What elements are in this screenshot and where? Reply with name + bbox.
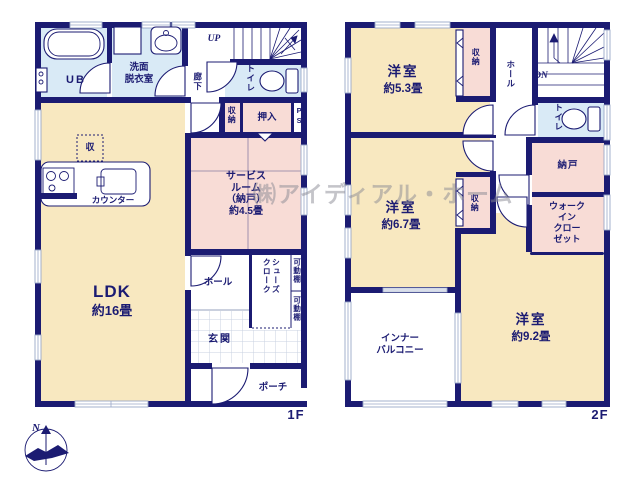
f2-toilet-label: トイレ [553,103,563,132]
f1-genkan-label: 玄関 [208,334,232,347]
compass-bird-icon [25,445,69,461]
f1-hall-label: ホール [204,277,233,289]
f1-toilet-label: トイレ [245,64,255,93]
f1-closet-label: 収納 [227,106,236,124]
f1-shelf-label-2: 可動棚 [292,296,301,322]
f1-room-ldk [41,103,185,401]
floor-plan-page: { "watermark": { "text": "㈱アイディアル・ホーム" }… [0,0,640,480]
f2-room-67b [351,232,455,287]
compass: N [25,422,69,471]
f2-room92-name: 洋室 [516,312,547,329]
f2-wic-label: ウォーク イン クロー ゼット [549,201,585,245]
toilet-tank-icon-2f [588,107,600,131]
compass-north-label: N [31,422,41,434]
kitchen-half-wall [41,193,77,199]
f1-hallway-label: 廊下 [192,72,202,91]
f1-storage-box-label: 収 [85,142,94,153]
f2-floor-label: 2F [591,407,608,423]
washer-space-icon [114,27,141,54]
f2-room67-size: 約6.7畳 [382,218,421,232]
f2-hall-label: ホール [505,60,515,89]
f1-oshiire-label: 押入 [257,112,276,124]
toilet-icon [260,71,284,91]
f2-dn-label: DN [534,71,548,83]
f2-room53-name: 洋室 [388,64,419,81]
f2-room-92b [461,234,496,401]
f2-fixtures [562,107,600,131]
watermark: ㈱アイディアル・ホーム [253,175,513,209]
f1-floor-label: 1F [287,407,304,423]
f1-up-label: UP [208,34,221,46]
f1-shelf-label-1: 可動棚 [292,258,301,284]
f1-counter-label: カウンター [92,195,135,206]
f1-ub-label: UB [66,74,86,88]
f1-porch-side-opening [301,388,307,401]
f2-balcony-label: インナー バルコニー [376,333,423,357]
toilet-tank-icon [286,69,298,93]
f1-ps-label: PS [294,106,303,126]
f1-shoes-cloak-label: シューズ クローク [262,258,280,294]
f2-room53-size: 約5.3畳 [384,82,423,96]
toilet-icon-2f [562,109,586,129]
f2-room92-size: 約9.2畳 [512,330,551,344]
f1-ldk-name: LDK [93,281,131,302]
f2-nando-label: 納戸 [557,160,578,172]
f2-closet-a-label: 収納 [471,48,480,66]
f1-washroom-label: 洗面 脱衣室 [125,62,154,86]
f1-porch-label: ポーチ [259,382,288,394]
f1-ldk-size: 約16畳 [92,303,132,319]
